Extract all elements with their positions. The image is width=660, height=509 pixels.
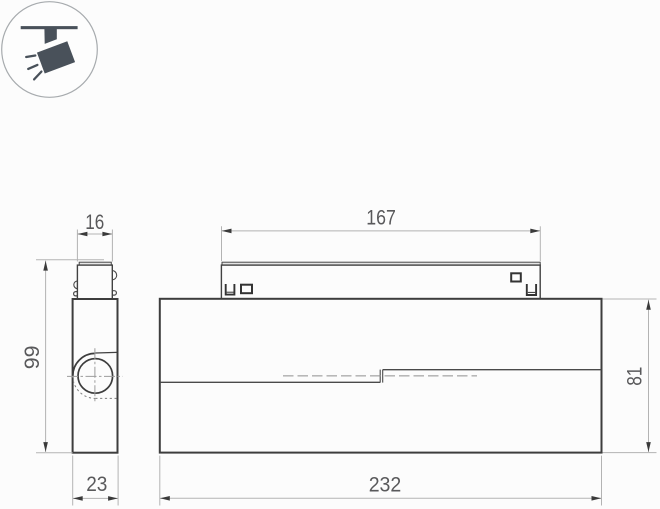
svg-text:99: 99 xyxy=(20,345,44,369)
svg-text:167: 167 xyxy=(366,205,396,229)
svg-text:81: 81 xyxy=(623,367,647,386)
svg-text:16: 16 xyxy=(85,210,104,234)
svg-text:23: 23 xyxy=(86,472,107,496)
svg-text:232: 232 xyxy=(369,473,402,497)
